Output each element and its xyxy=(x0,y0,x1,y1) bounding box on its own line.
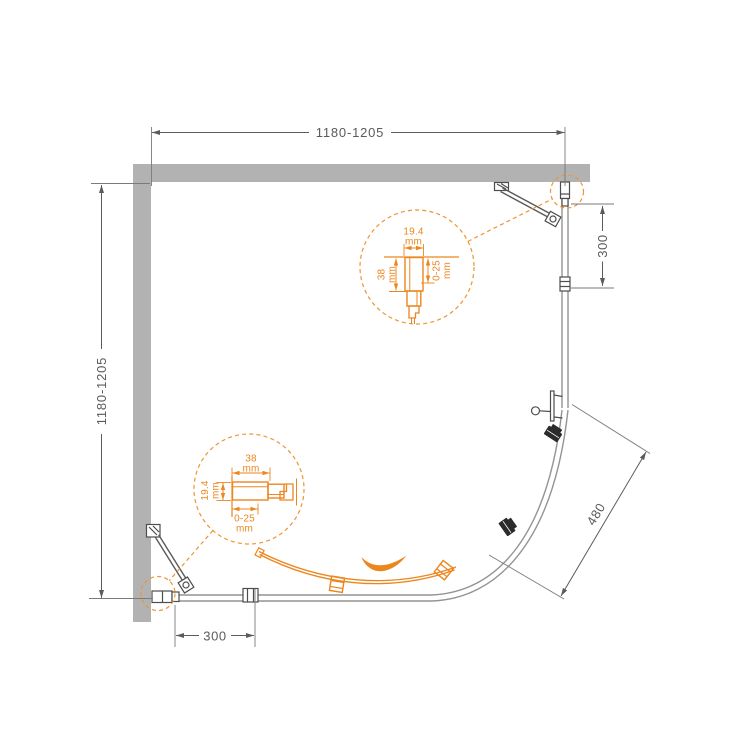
leader-line-bottom xyxy=(169,531,213,581)
door-roller-top xyxy=(544,423,565,443)
wall-top xyxy=(133,164,590,182)
detail-bottom-adjust-unit: mm xyxy=(236,524,253,535)
dim480-value: 480 xyxy=(584,500,609,528)
detail-top-adjust-label: 0-25 mm xyxy=(432,260,454,281)
detail-top-depth-unit: mm xyxy=(387,266,398,283)
walls xyxy=(133,164,590,622)
handle-knob-stem xyxy=(539,411,551,412)
handle-bar xyxy=(551,391,555,421)
detail-top-profile-foot xyxy=(409,306,419,318)
detail-top-profile-body xyxy=(405,258,423,292)
detail-top-adjust-value: 0-25 xyxy=(432,260,443,281)
wall-profiles xyxy=(152,182,570,603)
door-clamp-left-line-2 xyxy=(330,586,343,588)
top-brace-clamp-body xyxy=(545,211,561,226)
detail-top-width-unit: mm xyxy=(405,237,422,248)
bottom-panel-connector xyxy=(243,589,258,603)
door-slide-direction-arrow xyxy=(362,556,407,572)
door-glass-edge-1 xyxy=(259,552,456,581)
dim480-dim-line xyxy=(561,452,646,596)
dim480-ext-top xyxy=(572,405,650,454)
top-brace-bar-2 xyxy=(501,192,553,220)
bottom-wall-profile-foot xyxy=(172,592,179,602)
door-handle xyxy=(532,391,563,421)
leader-line-top xyxy=(468,199,552,242)
bottom-brace-clamp xyxy=(178,577,194,593)
left-dim-value: 1180-1205 xyxy=(94,357,109,425)
detail-bottom-height-label: 19.4 mm xyxy=(200,480,222,501)
handle-mount-top xyxy=(554,395,563,397)
door-roller-bottom xyxy=(498,516,518,537)
detail-top-profile-sleeve xyxy=(407,291,421,306)
detail-top-adjust-unit: mm xyxy=(442,262,453,279)
bottom300-value: 300 xyxy=(203,629,227,644)
right-panel-connector xyxy=(560,277,570,291)
door-guide-clamp-right xyxy=(434,560,453,579)
fixed-glass-panels xyxy=(172,182,568,601)
top-dim-value: 1180-1205 xyxy=(316,125,384,140)
bottom-brace-bar-1 xyxy=(155,537,185,585)
curved-track-outer xyxy=(432,410,568,601)
detail-top-depth-label: 38 mm xyxy=(377,266,399,283)
handle-knob xyxy=(532,407,540,415)
detail-bottom-height-unit: mm xyxy=(211,482,222,499)
detail-bottom-profile-body xyxy=(233,482,269,500)
shower-enclosure-technical-drawing: 19.4 mm 38 mm 0-25 mm 38 mm xyxy=(0,0,750,750)
dimension-right-300: 300 xyxy=(571,204,614,288)
detail-top-depth-value: 38 xyxy=(377,269,388,281)
door-clamp-right-body xyxy=(434,560,453,579)
dimension-door-opening-480: 480 xyxy=(489,405,650,600)
top-brace-clamp xyxy=(545,211,561,226)
sliding-door-open xyxy=(255,548,456,593)
detail-callout-top: 19.4 mm 38 mm 0-25 mm xyxy=(377,227,460,325)
wall-left xyxy=(133,164,151,622)
detail-callout-bottom: 38 mm 19.4 mm 0-25 mm xyxy=(200,454,297,535)
detail-bottom-height-value: 19.4 xyxy=(200,480,211,501)
right-wall-profile-foot xyxy=(562,199,568,207)
support-brace-bottom xyxy=(147,525,194,594)
right300-value: 300 xyxy=(595,234,610,258)
drawing-svg: 19.4 mm 38 mm 0-25 mm 38 mm xyxy=(0,0,750,750)
dim480-ext-bottom xyxy=(489,555,564,599)
bottom-brace-clamp-body xyxy=(178,577,194,593)
callout-anchors xyxy=(141,175,584,611)
detail-bottom-depth-unit: mm xyxy=(242,464,259,475)
